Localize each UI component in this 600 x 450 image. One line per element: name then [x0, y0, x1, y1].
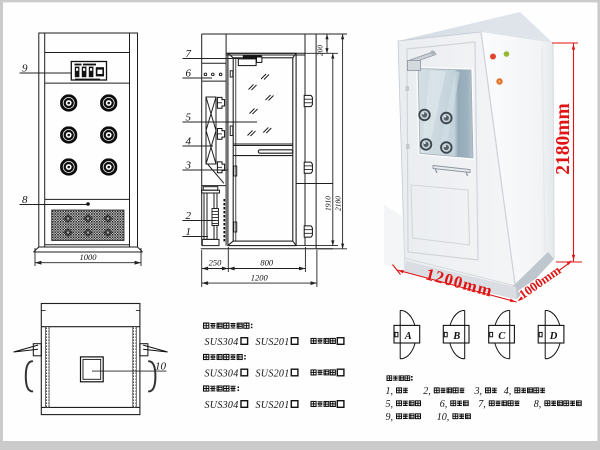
svg-text:6: 6 [186, 68, 192, 80]
svg-text:7: 7 [186, 48, 192, 60]
svg-text:SUS201: SUS201 [256, 400, 290, 411]
svg-text:9: 9 [22, 63, 28, 75]
svg-text:SUS304: SUS304 [205, 337, 239, 348]
svg-text:10,: 10, [437, 412, 450, 423]
svg-text:SUS304: SUS304 [205, 368, 239, 379]
svg-text:SUS201: SUS201 [256, 368, 290, 379]
svg-text:9,: 9, [386, 412, 394, 423]
svg-text:2: 2 [186, 210, 192, 222]
svg-text:1200: 1200 [251, 272, 269, 282]
svg-text:800: 800 [260, 258, 274, 268]
svg-text:SUS304: SUS304 [205, 400, 239, 411]
svg-text:A: A [404, 331, 412, 342]
svg-text:1910: 1910 [324, 196, 333, 211]
svg-text:1: 1 [186, 226, 192, 238]
svg-text:C: C [498, 331, 506, 342]
svg-text:4,: 4, [504, 386, 512, 397]
svg-text:3: 3 [185, 160, 192, 172]
svg-text:2180mm: 2180mm [553, 103, 574, 175]
svg-text:2180: 2180 [334, 196, 343, 211]
svg-text:8,: 8, [534, 399, 542, 410]
svg-text:10: 10 [155, 360, 167, 372]
svg-text:5,: 5, [386, 399, 394, 410]
svg-text:7,: 7, [478, 399, 486, 410]
svg-text:1,: 1, [386, 386, 394, 397]
svg-text:4: 4 [186, 136, 192, 148]
svg-text:1000: 1000 [80, 252, 98, 262]
svg-text:6,: 6, [440, 399, 448, 410]
svg-text:8: 8 [22, 194, 28, 206]
svg-text:D: D [549, 331, 558, 342]
svg-text:250: 250 [209, 258, 223, 268]
svg-text:SUS201: SUS201 [256, 337, 290, 348]
svg-text:B: B [452, 331, 460, 342]
svg-text:5: 5 [186, 112, 192, 124]
svg-text:3,: 3, [474, 386, 483, 397]
svg-text:2,: 2, [423, 386, 431, 397]
svg-text:200: 200 [316, 45, 325, 57]
